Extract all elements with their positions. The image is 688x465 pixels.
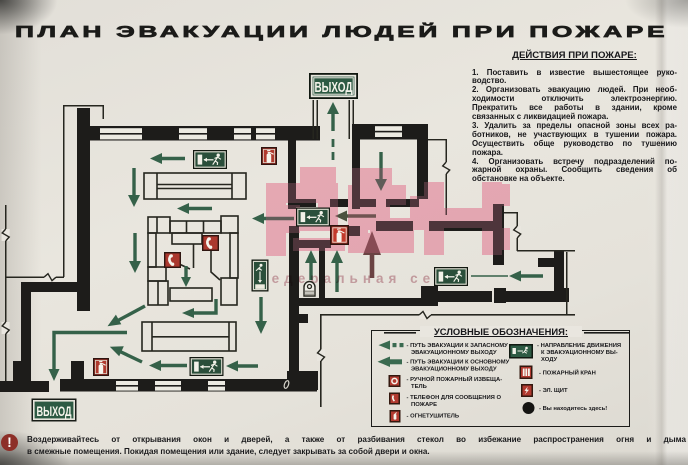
svg-text:федеральная сеть: федеральная сеть [255, 271, 460, 286]
svg-text:ВЫХОД: ВЫХОД [315, 80, 353, 96]
svg-text:ВЫХОД: ВЫХОД [37, 404, 72, 419]
